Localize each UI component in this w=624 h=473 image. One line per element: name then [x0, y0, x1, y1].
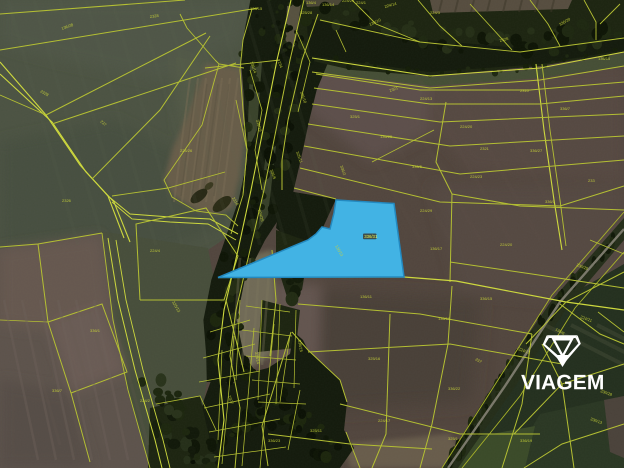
svg-text:2310: 2310: [520, 88, 530, 93]
svg-text:224/20: 224/20: [460, 124, 473, 129]
svg-text:336/1: 336/1: [545, 199, 556, 204]
svg-text:325/1: 325/1: [350, 114, 361, 119]
svg-text:224/2: 224/2: [140, 398, 151, 403]
svg-text:336/22: 336/22: [448, 386, 461, 391]
svg-text:336/31: 336/31: [364, 234, 378, 239]
svg-text:224/3: 224/3: [430, 10, 441, 15]
svg-text:336/23: 336/23: [268, 438, 281, 443]
svg-text:2321: 2321: [480, 146, 490, 151]
svg-text:336/1: 336/1: [90, 328, 101, 333]
svg-text:224/17: 224/17: [378, 418, 391, 423]
svg-text:336/15: 336/15: [480, 296, 493, 301]
svg-text:136/19: 136/19: [438, 316, 451, 321]
svg-text:224/13: 224/13: [420, 96, 433, 101]
svg-text:224/23: 224/23: [470, 174, 483, 179]
svg-text:136/4: 136/4: [306, 0, 317, 5]
svg-text:224/24: 224/24: [342, 0, 355, 3]
svg-text:224/26: 224/26: [180, 148, 193, 153]
svg-text:136/25: 136/25: [380, 134, 393, 139]
svg-text:224/1: 224/1: [356, 0, 367, 5]
svg-text:325/28: 325/28: [300, 10, 313, 15]
svg-text:224/29: 224/29: [420, 208, 433, 213]
svg-text:136/11: 136/11: [360, 294, 373, 299]
svg-text:2326: 2326: [62, 198, 72, 203]
svg-text:336/27: 336/27: [530, 148, 543, 153]
svg-text:136/17: 136/17: [430, 246, 443, 251]
svg-text:336/5: 336/5: [412, 164, 423, 169]
svg-text:224/20: 224/20: [500, 242, 513, 247]
svg-text:336/19: 336/19: [520, 438, 533, 443]
svg-text:325/16: 325/16: [368, 356, 381, 361]
svg-text:224/4: 224/4: [150, 248, 161, 253]
svg-text:325/1: 325/1: [448, 436, 459, 441]
svg-text:336/7: 336/7: [52, 388, 63, 393]
svg-text:136/14: 136/14: [322, 2, 335, 7]
svg-text:325/11: 325/11: [310, 428, 323, 433]
svg-text:336/7: 336/7: [560, 106, 571, 111]
svg-text:233: 233: [588, 178, 595, 183]
svg-text:136/15: 136/15: [598, 56, 611, 61]
svg-text:136/15: 136/15: [250, 6, 263, 11]
